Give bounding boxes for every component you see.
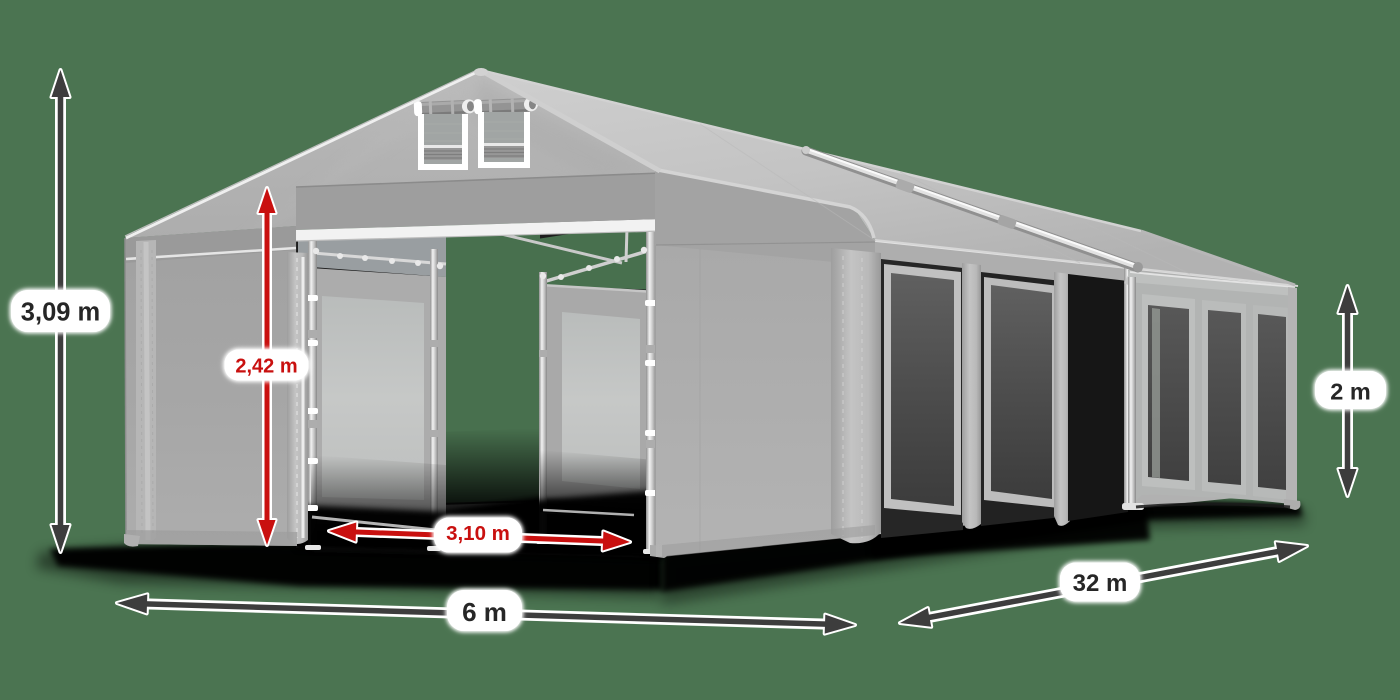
svg-text:2,42 m: 2,42 m <box>235 356 297 378</box>
svg-text:3,10 m: 3,10 m <box>446 522 510 545</box>
svg-text:32 m: 32 m <box>1073 570 1128 597</box>
svg-text:3,09 m: 3,09 m <box>21 299 100 327</box>
svg-text:6 m: 6 m <box>462 597 507 627</box>
svg-text:2 m: 2 m <box>1330 379 1371 405</box>
